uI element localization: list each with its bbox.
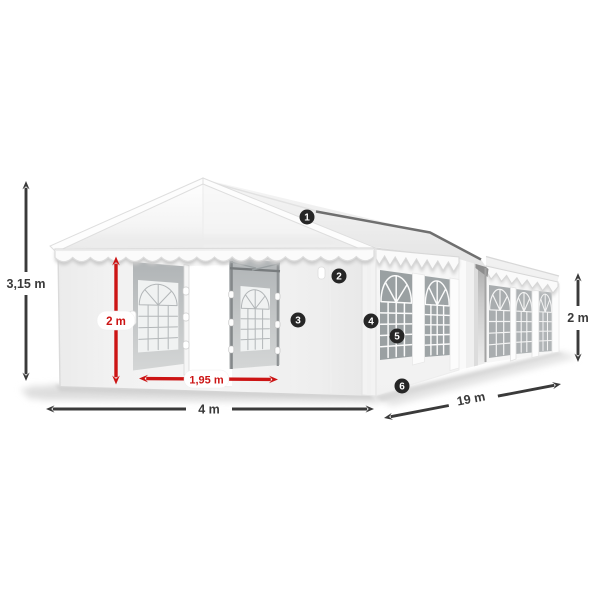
svg-text:6: 6	[399, 382, 405, 393]
svg-text:3: 3	[295, 316, 301, 327]
svg-text:1: 1	[304, 213, 310, 224]
svg-text:1,95 m: 1,95 m	[189, 375, 223, 387]
svg-text:5: 5	[394, 332, 400, 343]
svg-text:4 m: 4 m	[198, 403, 220, 417]
svg-text:4: 4	[368, 317, 374, 328]
svg-text:3,15 m: 3,15 m	[7, 277, 46, 291]
svg-text:2: 2	[336, 272, 342, 283]
svg-text:2 m: 2 m	[567, 311, 589, 325]
svg-text:2 m: 2 m	[106, 316, 126, 328]
